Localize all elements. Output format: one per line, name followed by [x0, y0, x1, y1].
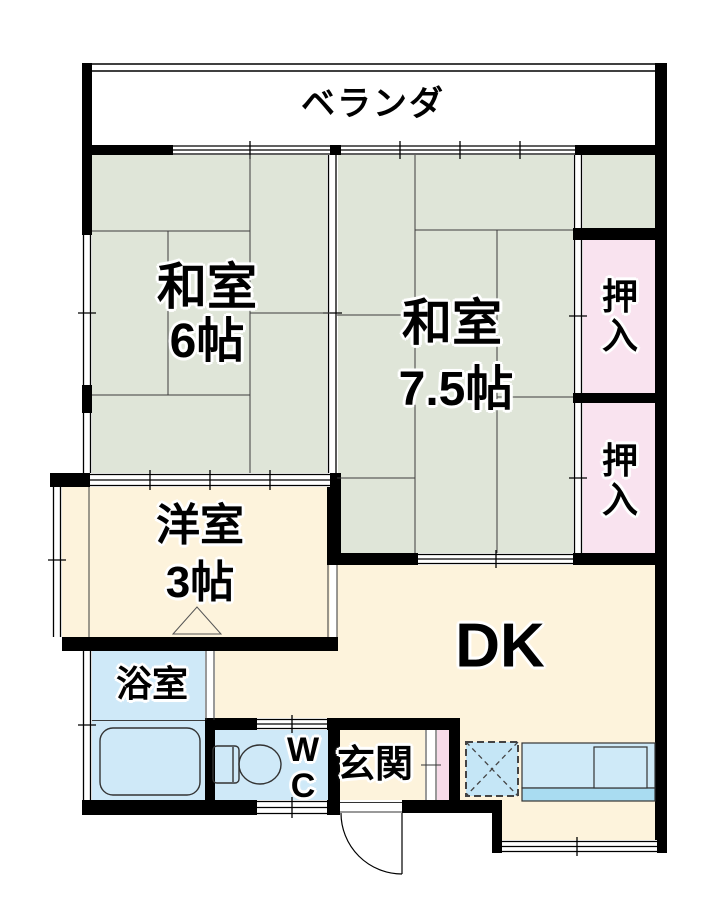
wall [82, 63, 92, 155]
corridor-floor [215, 651, 337, 718]
veranda-railing [92, 64, 655, 71]
washitsu75-size: 7.5帖 [399, 365, 514, 415]
youshitsu-label: 洋室 [156, 503, 244, 549]
oshiire2-label: 押入 [599, 442, 641, 520]
wall [327, 473, 341, 565]
wc-label-c: C [291, 769, 316, 805]
wall [573, 228, 667, 240]
alcove-floor [583, 155, 655, 228]
wall [82, 385, 92, 413]
genkan-shoe-cabinet [437, 730, 449, 800]
bath-label: 浴室 [116, 665, 188, 703]
wall [573, 393, 667, 403]
wall [492, 813, 502, 853]
wall [575, 145, 655, 155]
dk-label: DK [455, 613, 545, 678]
wall [62, 637, 338, 651]
floor-plan: ベランダ 和室 6帖 和室 7.5帖 押入 押入 洋室 3帖 DK 浴室 W C… [0, 0, 717, 923]
oshiire1-label: 押入 [599, 278, 641, 356]
veranda-label: ベランダ [301, 87, 445, 123]
youshitsu-size: 3帖 [166, 560, 234, 606]
wall [449, 728, 460, 813]
room-dk-floor-bottom [502, 813, 655, 840]
wall [82, 800, 257, 815]
wall [573, 553, 667, 565]
room-dk-floor-right [460, 718, 655, 813]
genkan-label: 玄関 [337, 746, 413, 786]
entry-door-swing [341, 813, 402, 874]
washitsu6-size: 6帖 [170, 317, 245, 367]
wall [82, 155, 92, 235]
wall [92, 145, 173, 155]
wall [205, 720, 215, 815]
wall [327, 553, 418, 565]
washitsu75-label: 和室 [402, 297, 502, 350]
wc-label-w: W [287, 733, 319, 769]
wall [50, 473, 92, 487]
wall [655, 63, 667, 853]
washitsu6-label: 和室 [157, 261, 257, 314]
wall [330, 145, 341, 155]
wall [327, 718, 460, 730]
room-washitsu75-floor [337, 155, 573, 553]
